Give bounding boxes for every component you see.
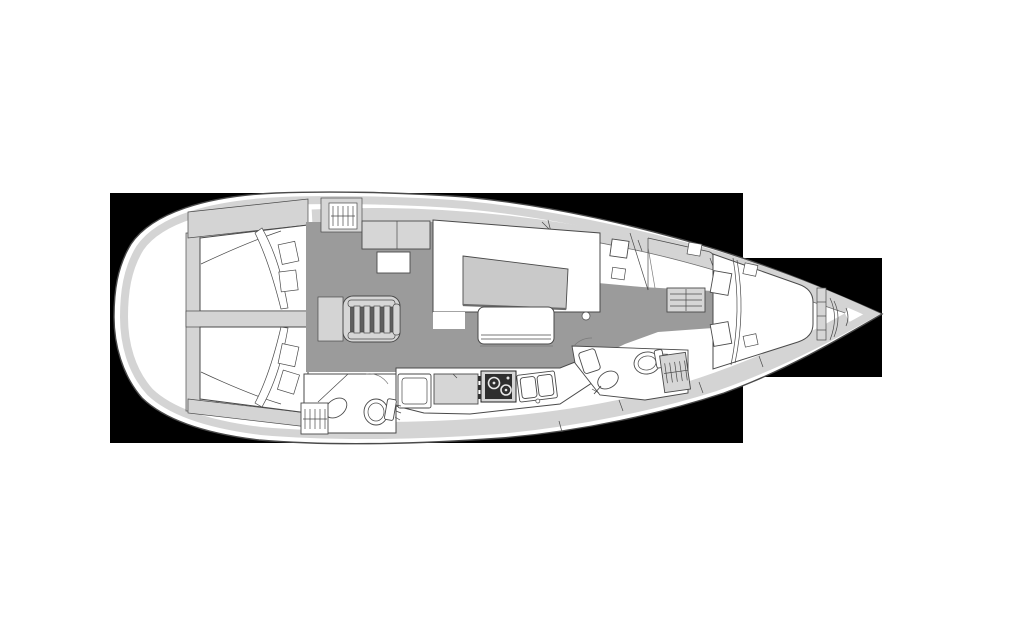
steps-landing — [318, 297, 343, 341]
seat-hatch — [687, 242, 702, 256]
step-tread — [354, 306, 360, 333]
step-tread — [364, 306, 370, 333]
pillow — [278, 241, 299, 264]
pillow — [279, 270, 298, 292]
settee-end — [433, 312, 465, 329]
faucet — [536, 399, 540, 403]
galley-cabinet — [434, 374, 478, 404]
boat-plan-svg — [0, 0, 1024, 644]
pillow — [278, 344, 299, 367]
table-pedestal — [582, 312, 590, 320]
sink-basin — [520, 376, 537, 399]
step-tread — [393, 304, 400, 335]
sink-basin — [537, 374, 554, 397]
drawer-unit — [667, 288, 705, 312]
cabin-divider-wall — [186, 311, 322, 327]
berth-outline — [200, 327, 308, 413]
galley-stove — [478, 371, 516, 402]
pillow — [710, 271, 732, 296]
berth-outline — [200, 225, 308, 311]
yacht-floor-plan — [0, 0, 1024, 644]
pillow — [710, 322, 732, 347]
deck-hatch — [743, 334, 758, 347]
aft-cabin-starboard — [200, 327, 308, 413]
deck-hatch — [743, 263, 758, 276]
companionway-steps — [318, 296, 400, 342]
companionway-wardrobe — [321, 198, 362, 232]
berth-foot-shelf — [817, 288, 826, 340]
step-tread — [374, 306, 380, 333]
step-tread — [384, 306, 390, 333]
aft-cabin-port — [200, 225, 308, 311]
seat-hatch — [611, 267, 625, 280]
galley-fridge — [398, 374, 431, 408]
aft-head-wardrobe — [301, 403, 328, 434]
salon-bench — [478, 307, 554, 344]
fwd-head-wardrobe — [660, 352, 691, 392]
seat-hatch — [610, 239, 629, 258]
aft-head — [301, 374, 401, 434]
salon-side-seat — [377, 252, 410, 273]
